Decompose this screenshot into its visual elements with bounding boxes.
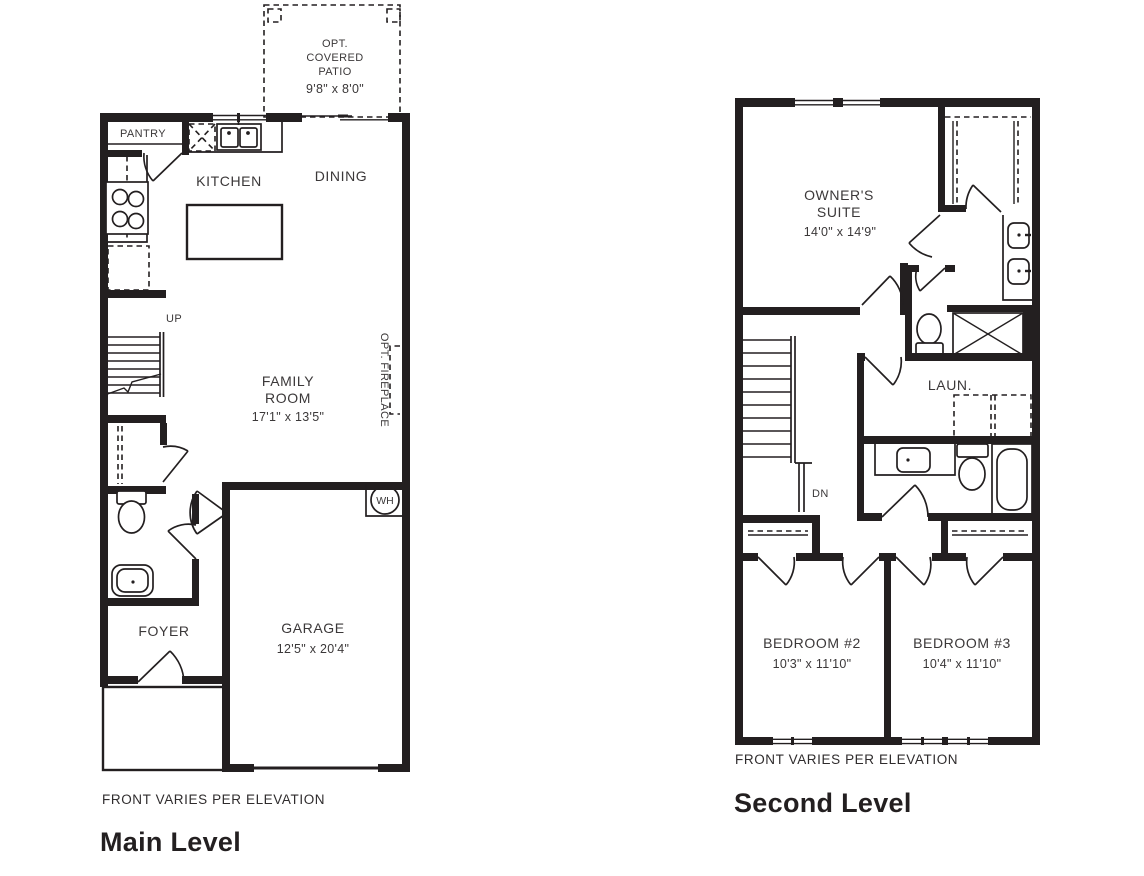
opt-fireplace-label: OPT. FIREPLACE (378, 333, 390, 427)
bedroom2-dims: 10'3" x 11'10" (773, 657, 852, 671)
patio-post-icon (268, 9, 281, 22)
bedroom3-closet-door (975, 557, 1003, 585)
double-vanity-icon (1003, 215, 1032, 300)
patio-dims: 9'8" x 8'0" (306, 82, 364, 96)
front-door (138, 651, 170, 682)
owners-bath (905, 215, 1032, 355)
second-level-title: Second Level (734, 788, 912, 818)
pantry: PANTRY (100, 113, 189, 181)
main-level-title: Main Level (100, 827, 241, 857)
bedroom3-closet (941, 521, 1028, 553)
patio-label: COVERED (306, 52, 363, 64)
bedroom2: BEDROOM #2 10'3" x 11'10" (763, 635, 861, 671)
powder-sink-icon (112, 565, 153, 596)
owners-closet (938, 107, 1031, 212)
family-room-dims: 17'1" x 13'5" (252, 410, 324, 424)
powder-door (168, 531, 196, 559)
porch (103, 687, 225, 770)
kitchen-label: KITCHEN (196, 173, 262, 189)
opt-fireplace-outline (390, 346, 400, 414)
bathtub-icon (992, 444, 1032, 515)
main-front-note: FRONT VARIES PER ELEVATION (102, 792, 325, 807)
dishwasher-icon (189, 124, 215, 151)
main-level-plan: OPT. COVERED PATIO 9'8" x 8'0" (100, 5, 410, 857)
owners-bath-door (909, 215, 940, 243)
patio-label: PATIO (318, 66, 351, 78)
pantry-label: PANTRY (120, 128, 166, 140)
bedroom2-label: BEDROOM #2 (763, 635, 861, 651)
patio-label: OPT. (322, 38, 348, 50)
garage-dims: 12'5" x 20'4" (277, 642, 349, 656)
kitchen-island (187, 205, 282, 259)
bedroom3-label: BEDROOM #3 (913, 635, 1011, 651)
hall-bath-door (882, 485, 915, 517)
washer-dryer-icon (954, 395, 1031, 438)
second-front-note: FRONT VARIES PER ELEVATION (735, 752, 958, 767)
stairs-up-label: UP (166, 313, 182, 325)
suite-door (862, 276, 890, 305)
dining-label: DINING (315, 168, 368, 184)
powder-room (100, 491, 199, 606)
bedroom3: BEDROOM #3 10'4" x 11'10" (913, 635, 1011, 671)
stairs-down: DN (742, 336, 829, 512)
toilet-icon (957, 444, 988, 490)
hall-closet (100, 423, 188, 494)
family-room: FAMILY ROOM 17'1" x 13'5" OPT. FIREPLACE (252, 333, 400, 427)
patio-post-icon (387, 9, 400, 22)
kitchen-window (213, 113, 266, 122)
cooktop-icon (106, 182, 148, 234)
family-room-label: ROOM (265, 390, 311, 406)
stairs-down-label: DN (812, 488, 829, 500)
foyer: FOYER (103, 623, 225, 770)
kitchen-sink-icon (217, 121, 261, 150)
kitchen: KITCHEN DINING (106, 121, 367, 290)
foyer-label: FOYER (138, 623, 189, 639)
toilet-icon (117, 491, 146, 533)
shower-icon (953, 313, 1023, 355)
bath-vanity-icon (875, 444, 955, 475)
closet-door (163, 451, 188, 482)
floor-plan-sheet: OPT. COVERED PATIO 9'8" x 8'0" (0, 0, 1144, 876)
garage: WH GARAGE 12'5" x 20'4" (277, 484, 403, 656)
owners-suite-dims: 14'0" x 14'9" (804, 225, 876, 239)
toilet-icon (916, 314, 943, 355)
bedroom2-door (851, 557, 879, 585)
second-level-plan: OWNER'S SUITE 14'0" x 14'9" (734, 98, 1040, 818)
laundry-door (865, 357, 893, 385)
family-room-label: FAMILY (262, 373, 314, 389)
water-heater-label: WH (376, 495, 394, 507)
owners-closet-door (973, 185, 1001, 212)
bedroom2-closet (735, 515, 820, 555)
stairs-up: UP (100, 290, 182, 423)
pantry-door (153, 153, 182, 181)
hall-bath (857, 436, 1032, 521)
bedroom2-closet-door (758, 557, 786, 585)
floor-plan-svg: OPT. COVERED PATIO 9'8" x 8'0" (0, 0, 1144, 876)
owners-suite-label: SUITE (817, 204, 861, 220)
garage-label: GARAGE (281, 620, 345, 636)
opt-fridge-space (108, 246, 149, 290)
bedroom3-dims: 10'4" x 11'10" (923, 657, 1002, 671)
wc-door (920, 268, 945, 291)
owners-suite-label: OWNER'S (804, 187, 874, 203)
laundry: LAUN. (857, 353, 1032, 444)
laundry-label: LAUN. (928, 377, 972, 393)
bedroom3-door (896, 557, 924, 585)
patio: OPT. COVERED PATIO 9'8" x 8'0" (264, 5, 400, 117)
